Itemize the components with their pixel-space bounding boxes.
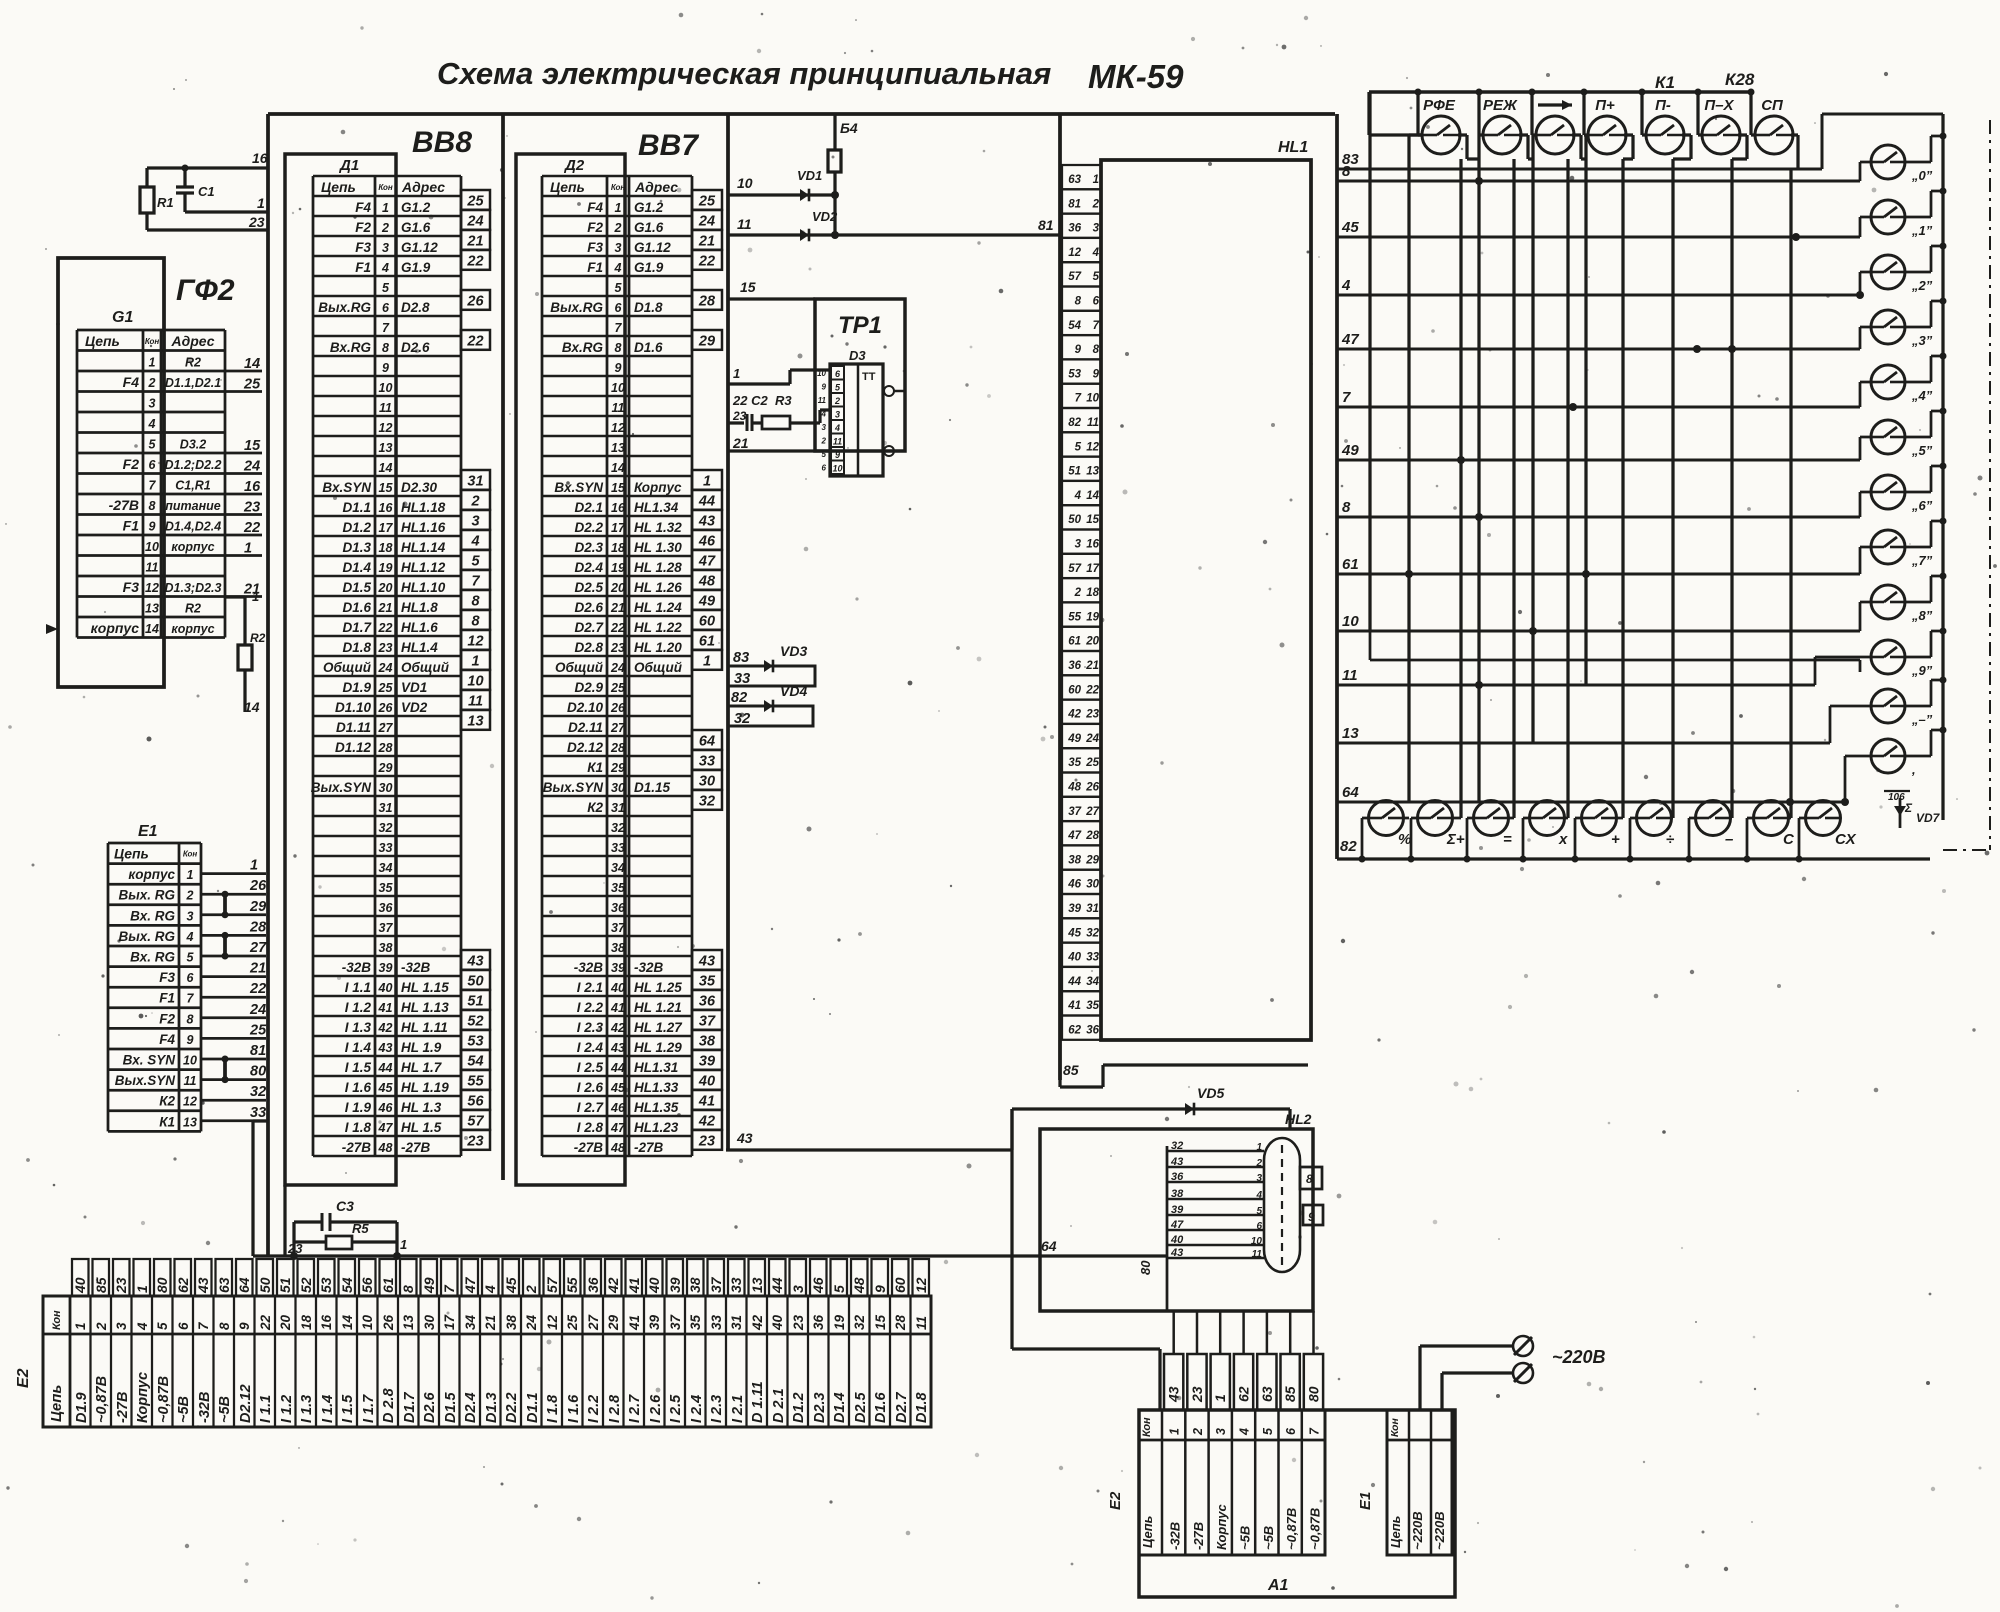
svg-text:D2.9: D2.9 <box>574 680 603 695</box>
svg-text:17: 17 <box>442 1313 457 1330</box>
svg-text:64: 64 <box>1342 784 1359 801</box>
svg-text:F4: F4 <box>123 374 140 390</box>
svg-text:35: 35 <box>379 881 394 895</box>
svg-text:HL 1.15: HL 1.15 <box>401 980 449 995</box>
svg-text:48: 48 <box>378 1141 393 1155</box>
svg-text:6: 6 <box>1256 1221 1262 1232</box>
svg-text:62: 62 <box>175 1277 191 1293</box>
svg-text:F4: F4 <box>159 1032 175 1047</box>
svg-text:-32В: -32В <box>197 1392 213 1423</box>
svg-text:„2”: „2” <box>1911 278 1933 293</box>
svg-text:4: 4 <box>1092 247 1100 259</box>
svg-text:13: 13 <box>183 1115 197 1129</box>
svg-text:2: 2 <box>148 376 156 390</box>
svg-text:40: 40 <box>698 1074 715 1090</box>
svg-text:3: 3 <box>1093 223 1100 235</box>
svg-text:HL 1.27: HL 1.27 <box>634 1020 683 1035</box>
svg-text:32: 32 <box>699 794 715 810</box>
svg-text:~5В: ~5В <box>1238 1526 1253 1550</box>
svg-text:37: 37 <box>668 1313 683 1330</box>
svg-text:D1.10: D1.10 <box>335 700 372 715</box>
svg-text:9: 9 <box>1308 1210 1315 1224</box>
svg-text:40: 40 <box>1170 1234 1184 1246</box>
svg-text:„3”: „3” <box>1911 333 1933 348</box>
svg-text:1: 1 <box>134 1285 150 1293</box>
svg-text:HL1.18: HL1.18 <box>401 500 446 515</box>
svg-text:5: 5 <box>471 554 480 570</box>
svg-text:I 2.2: I 2.2 <box>577 1000 604 1015</box>
svg-text:Общий: Общий <box>401 660 450 675</box>
svg-text:49: 49 <box>1341 442 1359 459</box>
svg-text:HL 1.21: HL 1.21 <box>634 1000 682 1015</box>
svg-text:29: 29 <box>249 899 266 915</box>
svg-text:36: 36 <box>699 994 716 1010</box>
svg-text:9: 9 <box>149 520 156 534</box>
svg-text:I 2.6: I 2.6 <box>648 1394 664 1423</box>
svg-text:Е1: Е1 <box>138 823 158 840</box>
svg-text:Адрес: Адрес <box>401 179 445 195</box>
svg-text:D2.12: D2.12 <box>238 1384 254 1423</box>
svg-text:÷: ÷ <box>1666 831 1675 848</box>
svg-text:33: 33 <box>250 1105 266 1121</box>
svg-text:F1: F1 <box>355 260 371 275</box>
svg-text:10: 10 <box>467 674 483 690</box>
svg-text:34: 34 <box>463 1314 478 1330</box>
svg-text:HL 1.20: HL 1.20 <box>634 640 682 655</box>
svg-text:16: 16 <box>611 501 626 515</box>
svg-text:D1.15: D1.15 <box>634 780 671 795</box>
svg-text:46: 46 <box>1067 879 1081 891</box>
svg-text:14: 14 <box>611 461 625 475</box>
svg-text:Е2: Е2 <box>15 1368 32 1388</box>
svg-text:24: 24 <box>243 459 260 475</box>
svg-text:D2.10: D2.10 <box>567 700 604 715</box>
svg-text:1: 1 <box>1212 1394 1228 1402</box>
svg-text:-27В: -27В <box>342 1140 372 1155</box>
svg-text:28: 28 <box>378 741 393 755</box>
svg-text:6: 6 <box>187 971 195 985</box>
svg-text:D 2.1: D 2.1 <box>771 1388 787 1423</box>
svg-text:43: 43 <box>1166 1386 1182 1403</box>
svg-text:22: 22 <box>258 1314 273 1331</box>
svg-text:ТТ: ТТ <box>862 371 876 383</box>
svg-text:HL 1.28: HL 1.28 <box>634 560 682 575</box>
svg-text:F4: F4 <box>355 200 371 215</box>
svg-text:Корпус: Корпус <box>135 1372 151 1423</box>
svg-text:корпус: корпус <box>171 622 214 636</box>
svg-text:П-: П- <box>1655 97 1671 114</box>
svg-text:1: 1 <box>1256 1142 1262 1153</box>
svg-text:23: 23 <box>732 409 747 423</box>
svg-text:-27В: -27В <box>634 1140 664 1155</box>
svg-text:I 1.1: I 1.1 <box>258 1395 274 1423</box>
svg-text:26: 26 <box>381 1314 396 1331</box>
svg-text:12: 12 <box>913 1277 929 1293</box>
svg-text:44: 44 <box>378 1061 393 1075</box>
svg-text:1: 1 <box>703 654 711 670</box>
svg-text:-27В: -27В <box>574 1140 604 1155</box>
svg-text:4: 4 <box>1238 1428 1252 1436</box>
svg-text:I 2.1: I 2.1 <box>577 980 603 995</box>
svg-text:28: 28 <box>610 741 625 755</box>
svg-text:10: 10 <box>737 175 753 191</box>
svg-text:64: 64 <box>699 734 715 750</box>
svg-text:HL1.8: HL1.8 <box>401 600 438 615</box>
svg-text:HL1.10: HL1.10 <box>401 580 446 595</box>
svg-text:G1.2: G1.2 <box>634 200 664 215</box>
svg-text:20: 20 <box>610 581 625 595</box>
svg-text:52: 52 <box>467 1014 483 1030</box>
svg-text:D2.11: D2.11 <box>568 720 603 735</box>
svg-text:HL1.16: HL1.16 <box>401 520 446 535</box>
svg-text:15: 15 <box>611 481 626 495</box>
svg-text:I 1.5: I 1.5 <box>345 1060 372 1075</box>
svg-text:21: 21 <box>610 601 625 615</box>
svg-text:=: = <box>1503 831 1512 848</box>
svg-text:22: 22 <box>466 334 483 350</box>
svg-text:D1.6: D1.6 <box>634 340 663 355</box>
svg-text:6: 6 <box>149 458 157 472</box>
svg-text:К1: К1 <box>587 760 603 775</box>
svg-text:D1.8: D1.8 <box>914 1391 930 1423</box>
svg-text:VD2: VD2 <box>401 700 428 715</box>
svg-text:106: 106 <box>1888 792 1905 803</box>
svg-text:HL 1.11: HL 1.11 <box>401 1020 448 1035</box>
svg-text:HL1.12: HL1.12 <box>401 560 446 575</box>
svg-text:40: 40 <box>610 981 625 995</box>
svg-text:11: 11 <box>1087 417 1099 429</box>
svg-text:9: 9 <box>615 361 622 375</box>
svg-text:28: 28 <box>1085 830 1099 842</box>
svg-text:1: 1 <box>1093 174 1099 186</box>
svg-text:Вх.SYN: Вх.SYN <box>554 480 603 495</box>
svg-text:33: 33 <box>709 1314 724 1330</box>
svg-text:HL1.14: HL1.14 <box>401 540 446 555</box>
svg-text:РФЕ: РФЕ <box>1423 97 1456 114</box>
svg-text:14: 14 <box>379 461 393 475</box>
svg-text:РЕЖ: РЕЖ <box>1483 97 1518 114</box>
svg-text:54: 54 <box>339 1277 355 1293</box>
svg-text:44: 44 <box>610 1061 625 1075</box>
svg-text:15: 15 <box>244 438 261 454</box>
svg-text:22: 22 <box>243 520 260 536</box>
svg-text:R5: R5 <box>352 1221 369 1236</box>
svg-text:48: 48 <box>698 574 716 590</box>
svg-text:51: 51 <box>277 1277 293 1293</box>
svg-text:46: 46 <box>810 1277 826 1294</box>
svg-text:Вых.SYN: Вых.SYN <box>311 780 372 795</box>
svg-text:-32В: -32В <box>634 960 664 975</box>
svg-text:49: 49 <box>421 1277 437 1294</box>
svg-text:32: 32 <box>250 1084 266 1100</box>
svg-text:HL1.34: HL1.34 <box>634 500 679 515</box>
svg-text:29: 29 <box>606 1314 621 1331</box>
svg-text:F3: F3 <box>123 579 140 595</box>
svg-text:25: 25 <box>378 681 394 695</box>
svg-text:12: 12 <box>183 1095 197 1109</box>
svg-text:D1.5: D1.5 <box>342 580 371 595</box>
svg-text:4: 4 <box>482 1285 498 1294</box>
svg-text:42: 42 <box>378 1021 393 1035</box>
svg-text:3: 3 <box>790 1285 806 1293</box>
svg-text:D1.12: D1.12 <box>335 740 372 755</box>
svg-text:45: 45 <box>378 1081 394 1095</box>
svg-text:Вых.SYN: Вых.SYN <box>115 1073 176 1088</box>
svg-text:HL 1.29: HL 1.29 <box>634 1040 682 1055</box>
svg-text:G1.6: G1.6 <box>634 220 664 235</box>
svg-text:5: 5 <box>1093 271 1100 283</box>
svg-text:D3.2: D3.2 <box>180 438 206 452</box>
svg-text:16: 16 <box>1086 539 1099 551</box>
svg-text:VD7: VD7 <box>1916 811 1941 825</box>
svg-text:I 1.2: I 1.2 <box>279 1395 295 1423</box>
svg-text:9: 9 <box>872 1285 888 1293</box>
svg-text:HL 1.13: HL 1.13 <box>401 1000 449 1015</box>
svg-text:24: 24 <box>524 1314 539 1331</box>
svg-text:D2.1: D2.1 <box>574 500 603 515</box>
svg-text:1: 1 <box>1168 1428 1182 1435</box>
svg-text:28: 28 <box>249 919 267 935</box>
svg-text:27: 27 <box>610 721 626 735</box>
svg-text:F3: F3 <box>159 970 175 985</box>
svg-text:46: 46 <box>378 1101 394 1115</box>
svg-text:4: 4 <box>381 261 389 275</box>
svg-text:17: 17 <box>379 521 394 535</box>
svg-text:81: 81 <box>1068 198 1081 210</box>
svg-text:I 2.5: I 2.5 <box>668 1394 684 1423</box>
svg-text:8: 8 <box>400 1285 416 1293</box>
svg-text:43: 43 <box>1170 1247 1183 1259</box>
svg-text:7: 7 <box>471 574 480 590</box>
svg-text:2: 2 <box>523 1285 539 1294</box>
svg-text:1: 1 <box>400 1237 407 1252</box>
svg-text:HL 1.30: HL 1.30 <box>634 540 682 555</box>
svg-text:К2: К2 <box>159 1094 175 1109</box>
svg-text:33: 33 <box>728 1277 744 1293</box>
svg-text:30: 30 <box>379 781 393 795</box>
svg-text:Общий: Общий <box>323 660 372 675</box>
svg-text:53: 53 <box>1068 368 1081 380</box>
svg-text:5: 5 <box>1075 441 1082 453</box>
svg-text:4: 4 <box>834 423 840 433</box>
svg-text:2: 2 <box>614 221 622 235</box>
svg-text:60: 60 <box>699 614 715 630</box>
svg-text:3: 3 <box>822 423 827 432</box>
svg-text:22: 22 <box>378 621 393 635</box>
svg-text:+: + <box>1611 831 1620 848</box>
svg-text:53: 53 <box>318 1277 334 1293</box>
svg-text:11: 11 <box>818 396 827 405</box>
svg-text:D3: D3 <box>849 348 866 363</box>
svg-text:46: 46 <box>610 1101 626 1115</box>
svg-text:10: 10 <box>1086 393 1099 405</box>
svg-text:24: 24 <box>698 214 715 230</box>
svg-text:D1.4: D1.4 <box>832 1392 848 1423</box>
svg-text:D1.9: D1.9 <box>342 680 371 695</box>
svg-text:20: 20 <box>1085 636 1099 648</box>
svg-text:D2.12: D2.12 <box>567 740 604 755</box>
svg-text:80: 80 <box>1138 1260 1153 1275</box>
svg-text:47: 47 <box>462 1276 478 1294</box>
svg-text:Вх.SYN: Вх.SYN <box>322 480 371 495</box>
svg-text:25: 25 <box>565 1314 580 1331</box>
svg-text:21: 21 <box>698 234 715 250</box>
svg-text:61: 61 <box>380 1277 396 1293</box>
svg-text:32: 32 <box>1086 927 1099 939</box>
svg-text:53: 53 <box>467 1034 483 1050</box>
svg-text:80: 80 <box>250 1064 266 1080</box>
svg-text:ВВ8: ВВ8 <box>412 126 472 159</box>
svg-text:D2.30: D2.30 <box>401 480 438 495</box>
svg-text:3: 3 <box>615 241 622 255</box>
svg-text:D1.3;D2.3: D1.3;D2.3 <box>165 581 222 595</box>
svg-text:,: , <box>1911 762 1916 777</box>
svg-text:85: 85 <box>93 1277 109 1293</box>
svg-text:8: 8 <box>1075 296 1082 308</box>
svg-text:1: 1 <box>382 201 389 215</box>
svg-text:43: 43 <box>378 1041 393 1055</box>
svg-text:51: 51 <box>1068 466 1081 478</box>
svg-text:4: 4 <box>186 930 194 944</box>
svg-text:D1.1: D1.1 <box>342 500 371 515</box>
svg-text:HL1.35: HL1.35 <box>634 1100 679 1115</box>
svg-text:15: 15 <box>873 1314 888 1330</box>
svg-text:21: 21 <box>466 234 483 250</box>
svg-text:3: 3 <box>114 1322 129 1330</box>
svg-text:~5В: ~5В <box>176 1396 192 1423</box>
svg-text:VD5: VD5 <box>1197 1085 1224 1101</box>
svg-text:13: 13 <box>749 1277 765 1293</box>
svg-text:21: 21 <box>483 1315 498 1331</box>
svg-text:37: 37 <box>611 921 626 935</box>
svg-text:16: 16 <box>244 479 261 495</box>
svg-text:32: 32 <box>611 821 625 835</box>
svg-text:ГФ2: ГФ2 <box>176 274 235 307</box>
svg-text:D2.5: D2.5 <box>574 580 603 595</box>
svg-text:42: 42 <box>750 1314 765 1331</box>
svg-text:D2.4: D2.4 <box>574 560 603 575</box>
svg-text:3: 3 <box>1214 1428 1228 1435</box>
svg-text:11: 11 <box>737 216 752 232</box>
svg-text:22: 22 <box>466 254 483 270</box>
svg-text:I 2.5: I 2.5 <box>577 1060 604 1075</box>
svg-text:I 1.1: I 1.1 <box>345 980 371 995</box>
svg-text:Вх.RG: Вх.RG <box>562 340 604 355</box>
svg-text:39: 39 <box>1171 1204 1184 1216</box>
svg-text:1: 1 <box>252 589 259 604</box>
svg-text:D1.2: D1.2 <box>342 520 371 535</box>
svg-text:13: 13 <box>467 714 483 730</box>
svg-text:35: 35 <box>1068 757 1081 769</box>
svg-text:41: 41 <box>610 1001 625 1015</box>
svg-text:I 2.7: I 2.7 <box>627 1394 643 1423</box>
svg-text:55: 55 <box>564 1277 580 1293</box>
svg-text:33: 33 <box>699 754 715 770</box>
svg-text:63: 63 <box>216 1277 232 1293</box>
svg-text:HL2: HL2 <box>1285 1111 1312 1127</box>
svg-text:4: 4 <box>1074 490 1082 502</box>
svg-text:I 1.8: I 1.8 <box>545 1394 561 1423</box>
svg-text:D1.9: D1.9 <box>74 1392 90 1423</box>
svg-text:13: 13 <box>1342 725 1359 742</box>
svg-text:32: 32 <box>379 821 393 835</box>
svg-text:I 2.7: I 2.7 <box>577 1100 605 1115</box>
svg-text:корпус: корпус <box>91 620 140 636</box>
svg-text:~220В: ~220В <box>1552 1347 1606 1367</box>
svg-text:HL 1.3: HL 1.3 <box>401 1100 442 1115</box>
svg-text:G1.6: G1.6 <box>401 220 431 235</box>
svg-text:42: 42 <box>698 1114 715 1130</box>
svg-text:29: 29 <box>1085 854 1099 866</box>
svg-text:50: 50 <box>1068 514 1081 526</box>
svg-text:Вых.RG: Вых.RG <box>318 300 371 315</box>
svg-text:43: 43 <box>736 1130 753 1146</box>
svg-text:9: 9 <box>187 1033 194 1047</box>
svg-text:Корпус: Корпус <box>634 480 682 495</box>
svg-text:6: 6 <box>1093 296 1100 308</box>
svg-text:40: 40 <box>1067 952 1081 964</box>
svg-text:2: 2 <box>381 221 389 235</box>
svg-text:3: 3 <box>187 909 194 923</box>
svg-text:43: 43 <box>610 1041 625 1055</box>
svg-text:I 2.4: I 2.4 <box>577 1040 604 1055</box>
svg-text:55: 55 <box>1068 611 1081 623</box>
svg-text:35: 35 <box>611 881 626 895</box>
svg-text:Общий: Общий <box>555 660 604 675</box>
svg-text:ВВ7: ВВ7 <box>638 129 699 162</box>
svg-text:П+: П+ <box>1595 97 1615 114</box>
svg-text:HL 1.24: HL 1.24 <box>634 600 682 615</box>
svg-text:I 2.3: I 2.3 <box>709 1395 725 1423</box>
svg-text:„–”: „–” <box>1911 712 1933 727</box>
svg-text:1: 1 <box>149 356 156 370</box>
svg-text:„9”: „9” <box>1911 663 1933 678</box>
svg-text:R2: R2 <box>185 356 201 370</box>
svg-text:СП: СП <box>1761 97 1784 114</box>
svg-text:2: 2 <box>1092 198 1100 210</box>
svg-text:27: 27 <box>586 1313 601 1331</box>
svg-text:42: 42 <box>1067 709 1081 721</box>
svg-text:С: С <box>1783 831 1795 848</box>
svg-text:47: 47 <box>1170 1219 1184 1231</box>
svg-text:12: 12 <box>379 421 393 435</box>
svg-text:36: 36 <box>1068 660 1081 672</box>
svg-text:„4”: „4” <box>1911 388 1933 403</box>
svg-text:D1.3: D1.3 <box>484 1392 500 1423</box>
svg-text:10: 10 <box>379 381 393 395</box>
svg-text:23: 23 <box>1189 1386 1205 1403</box>
svg-text:Кон: Кон <box>1141 1417 1153 1437</box>
svg-text:39: 39 <box>379 961 393 975</box>
svg-text:60: 60 <box>1068 684 1081 696</box>
svg-text:HL1.23: HL1.23 <box>634 1120 679 1135</box>
svg-text:36: 36 <box>811 1314 826 1330</box>
svg-text:30: 30 <box>1086 879 1099 891</box>
svg-text:HL1: HL1 <box>1278 139 1308 156</box>
svg-text:Цепь: Цепь <box>550 179 585 195</box>
svg-text:30: 30 <box>611 781 625 795</box>
svg-text:57: 57 <box>544 1276 560 1293</box>
svg-text:D 2.8: D 2.8 <box>381 1387 397 1423</box>
svg-text:Вх.RG: Вх.RG <box>330 340 372 355</box>
svg-text:37: 37 <box>1068 806 1081 818</box>
svg-text:3: 3 <box>1256 1173 1262 1184</box>
svg-text:24: 24 <box>378 661 393 675</box>
svg-text:~0,87В: ~0,87В <box>1284 1508 1299 1550</box>
svg-text:16: 16 <box>252 150 268 166</box>
svg-text:1: 1 <box>73 1322 88 1330</box>
svg-text:81: 81 <box>1038 217 1054 233</box>
